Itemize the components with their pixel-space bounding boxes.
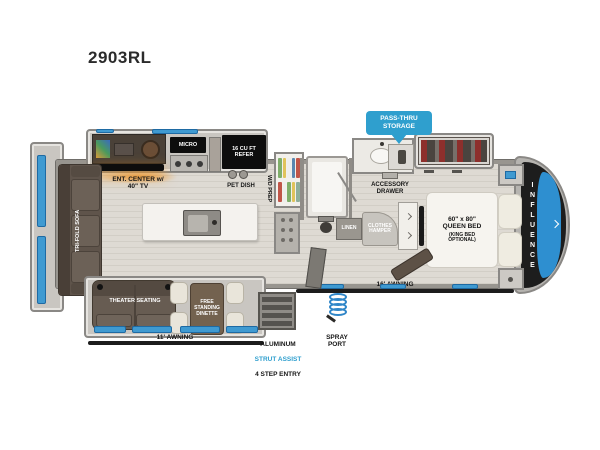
wardrobe-handle-icon — [452, 170, 462, 173]
queen-bed: 60" x 80" QUEEN BED (KING BED OPTIONAL) — [426, 192, 498, 268]
tri-fold-sofa-label: TRI-FOLD SOFA — [75, 199, 81, 263]
microwave-label: MICRO — [179, 142, 197, 148]
media-controls-icon — [114, 143, 134, 156]
linen-label: LINEN — [342, 226, 357, 232]
pantry-shelf — [278, 158, 300, 178]
wardrobe-clothes-icon — [419, 138, 489, 164]
bedroom-dresser — [398, 202, 418, 250]
wd-prep-label: W/D PREP — [262, 168, 272, 210]
slide-window-icon — [94, 326, 126, 333]
wall-window-icon — [452, 284, 478, 289]
entry-steps — [258, 292, 296, 330]
kitchen-drawer-cabinet — [274, 212, 300, 254]
toilet-icon — [320, 222, 332, 233]
wardrobe-handle-icon — [424, 170, 434, 173]
slide-window-icon — [180, 326, 220, 333]
pass-thru-storage-callout: PASS-THRU STORAGE — [366, 111, 432, 135]
brand-name: INFLUENCE — [524, 172, 536, 282]
bedroom-wardrobe-slide — [414, 133, 494, 169]
sofa-back — [59, 165, 70, 295]
nightstand — [498, 164, 524, 186]
entertainment-center — [92, 134, 166, 164]
burner-icon — [175, 161, 181, 167]
pass-thru-pointer-icon — [391, 134, 407, 144]
model-number: 2903RL — [88, 48, 151, 68]
accessory-drawer-label: ACCESSORY DRAWER — [360, 182, 420, 196]
wall-window-icon — [318, 284, 344, 289]
dinette-chair — [226, 282, 244, 304]
living-slide: THEATER SEATING FREE STANDING DINETTE — [84, 276, 266, 338]
slide-window-icon — [226, 326, 258, 333]
kitchen-island — [142, 203, 258, 241]
fireplace-icon — [141, 140, 160, 159]
nightstand-item-icon — [508, 277, 513, 282]
ent-center-label: ENT. CENTER w/ 40" TV — [96, 176, 180, 191]
wall-window-icon — [380, 284, 406, 289]
dinette-label: FREE STANDING DINETTE — [194, 300, 220, 317]
slide-window-icon — [132, 326, 172, 333]
rear-window-icon — [37, 236, 46, 304]
awning-11-bar — [88, 341, 264, 345]
faucet-icon — [380, 142, 384, 146]
pet-bowl-icon — [239, 170, 248, 179]
chevron-right-icon — [405, 213, 412, 220]
sofa-armrest — [71, 166, 100, 177]
hamper-label: CLOTHES HAMPER — [368, 224, 392, 235]
pillow — [498, 232, 522, 267]
chevron-right-icon — [405, 232, 412, 239]
linen-cabinet: LINEN — [336, 218, 362, 240]
entry-material-label: ALUMINUM — [246, 341, 310, 348]
spray-port-label: SPRAY PORT — [317, 334, 357, 349]
dinette-chair — [170, 282, 188, 304]
entry-steps-label: 4 STEP ENTRY — [246, 371, 310, 378]
bedroom-tv-icon — [419, 206, 424, 246]
shower — [306, 156, 348, 218]
rear-window-icon — [37, 155, 46, 227]
accessory-drawer-icon — [382, 172, 398, 179]
cupholder-icon — [97, 284, 103, 290]
kitchen-cabinet — [209, 137, 221, 172]
entry-feature-label: STRUT ASSIST — [246, 356, 310, 363]
storage-station — [388, 144, 414, 170]
microwave: MICRO — [170, 137, 206, 153]
pet-dish-icon — [228, 170, 250, 180]
stereo-display-icon — [96, 140, 110, 158]
theater-seating: THEATER SEATING — [92, 280, 176, 330]
theater-seating-label: THEATER SEATING — [93, 298, 177, 304]
kitchen-window-icon — [96, 129, 114, 133]
floorplan-canvas: 2903RL INFLUENCE MICRO — [0, 0, 600, 450]
nightstand — [498, 268, 524, 290]
refrigerator: 16 CU FT REFER — [222, 135, 266, 169]
island-sink-icon — [183, 210, 221, 236]
kitchen-slide: MICRO 16 CU FT REFER — [86, 129, 268, 173]
refrigerator-label: 16 CU FT REFER — [232, 146, 256, 159]
pet-bowl-icon — [228, 170, 237, 179]
faucet-icon — [212, 220, 217, 225]
burner-icon — [197, 161, 203, 167]
bed-option-label: (KING BED OPTIONAL) — [448, 233, 476, 245]
bed-size-label: 60" x 80" QUEEN BED — [443, 216, 482, 231]
pet-dish-label: PET DISH — [214, 183, 268, 190]
pass-thru-storage-label: PASS-THRU STORAGE — [380, 115, 417, 131]
spray-port-icon — [328, 293, 350, 327]
nightstand-item-icon — [505, 171, 516, 179]
pantry-shelf — [278, 182, 300, 202]
bath-wall — [300, 158, 304, 220]
entry-label: ALUMINUM STRUT ASSIST 4 STEP ENTRY — [246, 334, 310, 386]
burner-icon — [186, 161, 192, 167]
pillow — [498, 194, 522, 229]
